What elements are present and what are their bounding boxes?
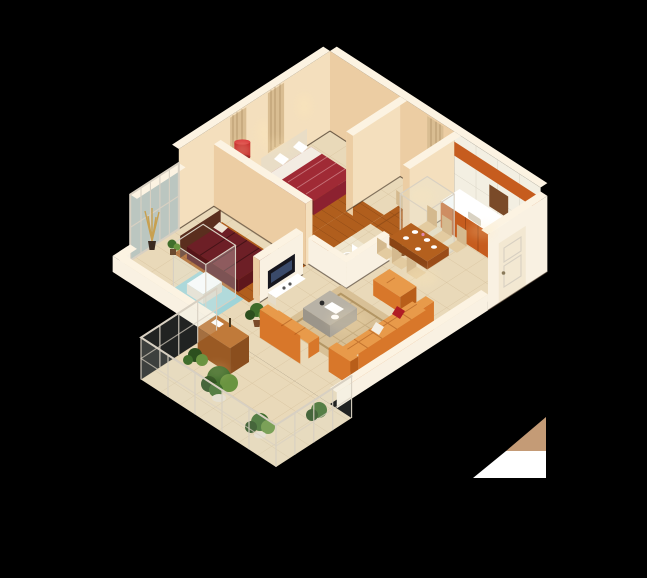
artifact-tan-triangle (506, 417, 546, 451)
apartment-render-canvas (0, 0, 647, 578)
artifact-white-triangle (473, 451, 546, 478)
render-artifact (473, 417, 546, 478)
floor-plan-svg (0, 0, 647, 578)
apartment-scene (113, 47, 548, 467)
wall-light-glow (297, 94, 311, 118)
ceiling-glow (327, 309, 367, 333)
door-knob (502, 271, 506, 275)
